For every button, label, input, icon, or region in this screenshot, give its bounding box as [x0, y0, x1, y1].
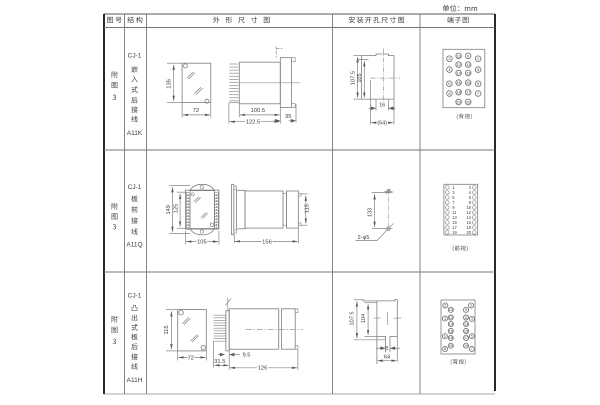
svg-text:133: 133	[368, 208, 374, 217]
svg-text:149: 149	[166, 205, 172, 214]
svg-text:115: 115	[304, 204, 310, 213]
svg-text:5: 5	[471, 335, 473, 339]
svg-text:35: 35	[285, 114, 291, 120]
svg-text:100.5: 100.5	[251, 108, 266, 114]
svg-text:14: 14	[449, 322, 453, 326]
svg-text:122.5: 122.5	[246, 120, 261, 126]
svg-text:7: 7	[477, 91, 479, 96]
svg-text:17: 17	[464, 336, 468, 340]
svg-text:13: 13	[466, 70, 470, 75]
svg-text:8: 8	[444, 347, 446, 351]
svg-text:11: 11	[466, 62, 470, 67]
svg-text:156: 156	[262, 239, 272, 245]
svg-text:7: 7	[471, 347, 473, 351]
svg-text:6: 6	[448, 81, 450, 86]
svg-text:CJ-1: CJ-1	[128, 184, 142, 191]
svg-text:12: 12	[456, 62, 460, 67]
svg-text:11: 11	[464, 316, 468, 320]
svg-text:135: 135	[166, 79, 172, 89]
svg-text:31.5: 31.5	[214, 359, 225, 365]
svg-text:(64): (64)	[377, 121, 387, 127]
svg-text:4: 4	[444, 317, 446, 321]
svg-text:CJ-1: CJ-1	[128, 52, 142, 59]
svg-text:A11H: A11H	[127, 377, 143, 384]
svg-text:104: 104	[361, 314, 367, 323]
svg-text:A11Q: A11Q	[126, 241, 142, 248]
svg-text:19: 19	[452, 230, 457, 235]
svg-text:16: 16	[449, 329, 453, 333]
svg-text:1: 1	[477, 56, 479, 61]
svg-text:9: 9	[467, 53, 469, 58]
svg-text:15: 15	[466, 80, 470, 85]
svg-text:12: 12	[449, 316, 453, 320]
svg-text:18: 18	[449, 336, 453, 340]
svg-text:CJ-1: CJ-1	[128, 292, 142, 299]
svg-text:105: 105	[357, 73, 363, 82]
svg-text:16: 16	[456, 80, 460, 85]
svg-text:2-φ5: 2-φ5	[358, 235, 370, 241]
svg-text:107.5: 107.5	[350, 71, 356, 85]
svg-text:72: 72	[188, 355, 194, 361]
svg-text:2: 2	[444, 304, 446, 308]
svg-text:17: 17	[466, 90, 470, 95]
svg-text:19: 19	[464, 344, 468, 348]
svg-text:4: 4	[448, 67, 451, 72]
svg-text:2: 2	[448, 56, 450, 61]
svg-text:20: 20	[449, 344, 453, 348]
svg-text:105: 105	[197, 240, 207, 246]
svg-text:3: 3	[471, 317, 473, 321]
svg-text:19: 19	[466, 99, 470, 104]
svg-text:115: 115	[164, 325, 170, 334]
svg-text:126: 126	[258, 366, 268, 372]
svg-text:3: 3	[477, 67, 479, 72]
svg-text:15: 15	[464, 329, 468, 333]
svg-text:5: 5	[477, 81, 479, 86]
svg-text:16: 16	[384, 345, 389, 351]
svg-text:18: 18	[456, 90, 460, 95]
svg-text:16: 16	[379, 102, 385, 108]
svg-text:A11K: A11K	[127, 130, 143, 137]
svg-text:107.5: 107.5	[350, 312, 356, 326]
svg-text:6: 6	[444, 335, 446, 339]
svg-text:9.5: 9.5	[242, 353, 250, 359]
svg-text:64: 64	[384, 355, 390, 361]
svg-text:72: 72	[193, 108, 199, 114]
svg-text:125: 125	[174, 204, 180, 213]
svg-text:1: 1	[470, 304, 472, 308]
svg-text:20: 20	[466, 230, 471, 235]
svg-text:10: 10	[449, 308, 453, 312]
svg-text:13: 13	[464, 322, 468, 326]
svg-text:9: 9	[465, 308, 467, 312]
svg-text:8: 8	[448, 91, 450, 96]
